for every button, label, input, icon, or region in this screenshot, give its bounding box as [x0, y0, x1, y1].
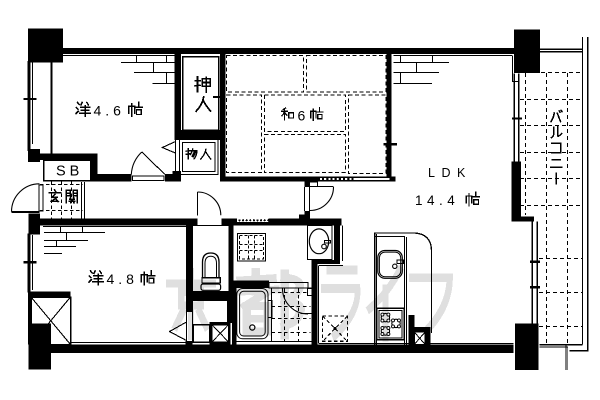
svg-text:4.8: 4.8 [107, 271, 138, 287]
svg-text:SB: SB [56, 163, 83, 179]
svg-text:LDK: LDK [428, 166, 472, 180]
svg-text:4.6: 4.6 [94, 103, 125, 119]
svg-text:6: 6 [298, 108, 306, 124]
svg-text:14.4: 14.4 [415, 193, 459, 208]
